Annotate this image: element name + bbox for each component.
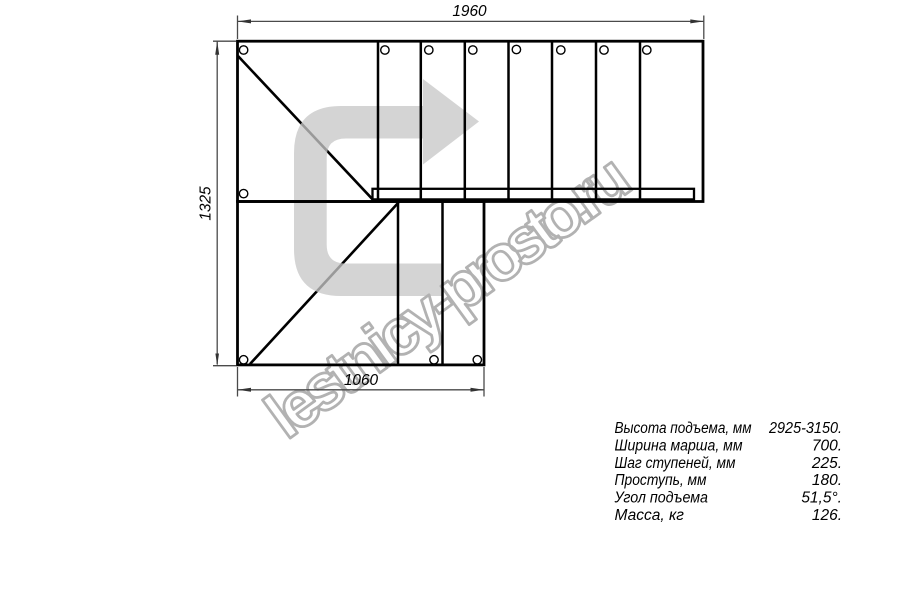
svg-text:1060: 1060 bbox=[344, 372, 379, 389]
svg-text:700.: 700. bbox=[812, 437, 842, 454]
svg-text:Шаг ступеней, мм: Шаг ступеней, мм bbox=[615, 455, 736, 472]
svg-text:126.: 126. bbox=[812, 507, 842, 524]
svg-text:180.: 180. bbox=[812, 472, 842, 489]
svg-text:Масса, кг: Масса, кг bbox=[615, 507, 685, 524]
svg-text:Ширина марша, мм: Ширина марша, мм bbox=[615, 437, 743, 454]
svg-text:1960: 1960 bbox=[452, 3, 487, 20]
svg-text:Проступь, мм: Проступь, мм bbox=[615, 472, 707, 489]
svg-text:225.: 225. bbox=[811, 455, 842, 472]
svg-text:2925-3150.: 2925-3150. bbox=[768, 420, 842, 437]
svg-text:51,5°.: 51,5°. bbox=[801, 490, 842, 507]
svg-text:Высота подъема, мм: Высота подъема, мм bbox=[615, 420, 752, 437]
svg-text:1325: 1325 bbox=[198, 186, 215, 221]
svg-text:Угол подъема: Угол подъема bbox=[614, 490, 709, 507]
